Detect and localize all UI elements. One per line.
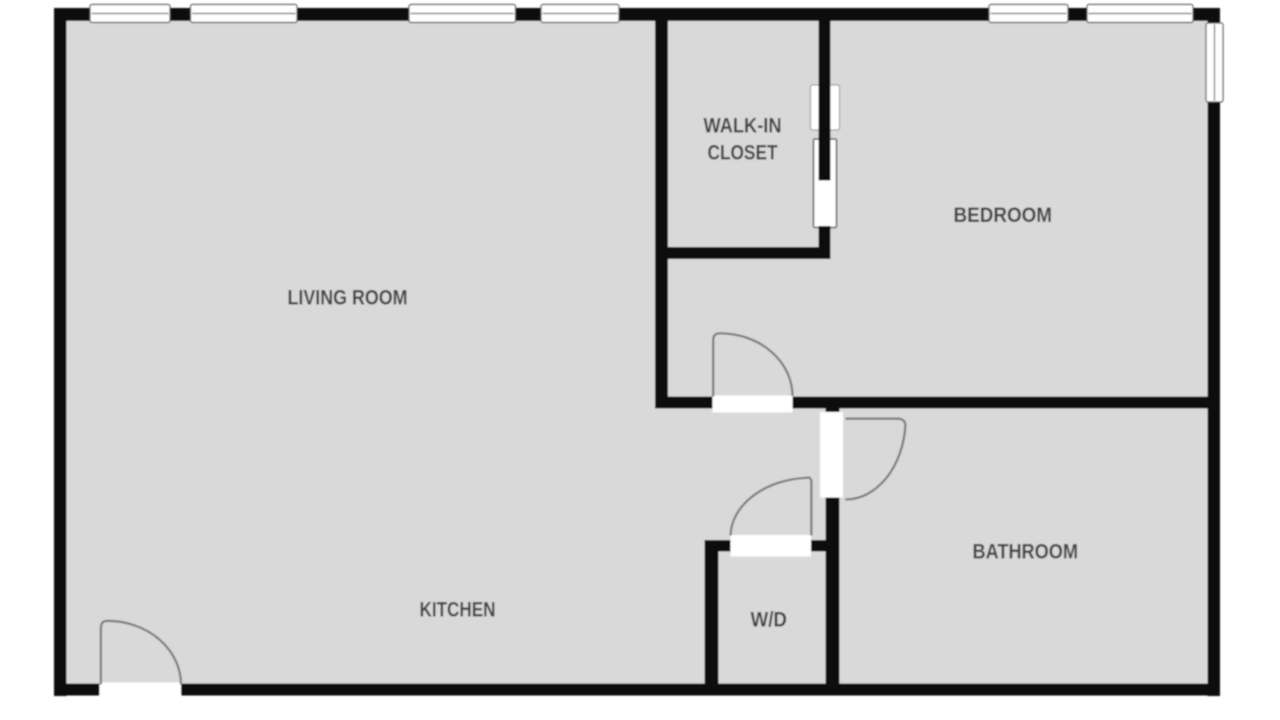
svg-text:BATHROOM: BATHROOM (973, 539, 1079, 563)
svg-text:BEDROOM: BEDROOM (954, 203, 1053, 227)
svg-text:CLOSET: CLOSET (708, 141, 778, 165)
svg-text:W/D: W/D (751, 608, 788, 632)
svg-text:WALK-IN: WALK-IN (704, 113, 782, 137)
svg-text:KITCHEN: KITCHEN (420, 598, 496, 622)
svg-text:LIVING ROOM: LIVING ROOM (288, 285, 408, 309)
